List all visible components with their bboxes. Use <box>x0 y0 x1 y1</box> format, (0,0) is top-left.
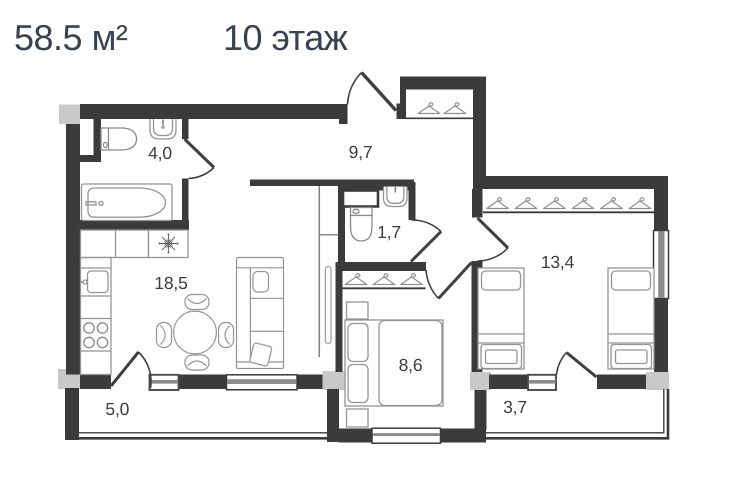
svg-text:1,7: 1,7 <box>377 222 401 242</box>
svg-text:9,7: 9,7 <box>349 142 373 162</box>
svg-text:10 этаж: 10 этаж <box>223 17 348 58</box>
svg-text:58.5 м²: 58.5 м² <box>14 17 128 58</box>
svg-text:13,4: 13,4 <box>541 252 575 272</box>
svg-text:18,5: 18,5 <box>154 273 187 293</box>
svg-text:3,7: 3,7 <box>503 397 527 417</box>
svg-text:5,0: 5,0 <box>105 399 129 419</box>
svg-text:8,6: 8,6 <box>399 355 423 375</box>
svg-text:4,0: 4,0 <box>148 143 172 163</box>
